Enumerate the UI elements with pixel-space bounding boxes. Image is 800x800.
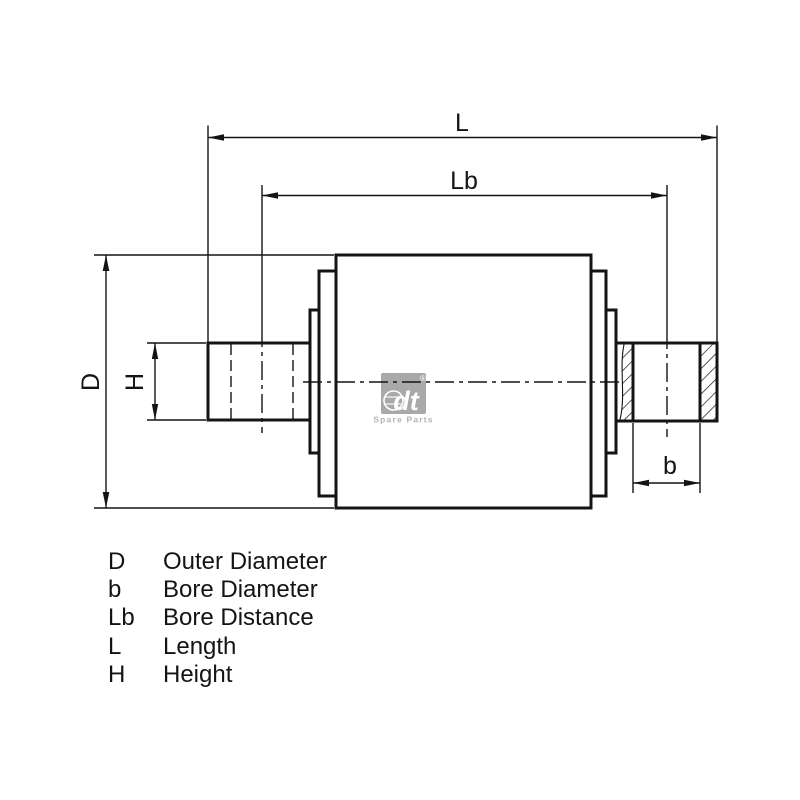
legend-description: Bore Diameter <box>163 576 318 604</box>
legend-symbol: H <box>108 661 163 689</box>
dim-label-b: b <box>663 452 677 480</box>
dimension-H <box>147 343 206 420</box>
legend-row: L Length <box>108 633 327 661</box>
right-ring <box>591 271 606 496</box>
left-shaft <box>208 343 310 420</box>
arrowhead-icon <box>152 343 158 359</box>
dimension-L <box>208 126 717 343</box>
arrowhead-icon <box>701 134 717 141</box>
legend-description: Height <box>163 661 232 689</box>
arrowhead-icon <box>103 492 110 508</box>
legend-description: Bore Distance <box>163 604 314 632</box>
hatch-right-wall <box>700 345 716 420</box>
legend-description: Outer Diameter <box>163 548 327 576</box>
logo-caption-text: Spare Parts <box>373 415 433 425</box>
legend-row: b Bore Diameter <box>108 576 327 604</box>
arrowhead-icon <box>633 480 649 486</box>
legend-symbol: b <box>108 576 163 604</box>
legend-symbol: D <box>108 548 163 576</box>
logo-brand-text: dt <box>393 386 419 416</box>
legend-row: Lb Bore Distance <box>108 604 327 632</box>
arrowhead-icon <box>262 192 278 199</box>
dim-label-Lb: Lb <box>450 167 478 195</box>
dim-label-L: L <box>455 109 469 137</box>
arrowhead-icon <box>152 404 158 420</box>
left-ring <box>319 271 336 496</box>
dimension-legend: D Outer Diameter b Bore Diameter Lb Bore… <box>108 548 327 689</box>
legend-symbol: L <box>108 633 163 661</box>
arrowhead-icon <box>103 255 110 271</box>
dt-spare-parts-logo: dt ® Spare Parts <box>373 373 433 425</box>
arrowhead-icon <box>684 480 700 486</box>
dim-label-D: D <box>77 373 105 391</box>
dim-label-H: H <box>121 373 149 391</box>
technical-drawing-page: dt ® Spare Parts <box>0 0 800 800</box>
legend-row: D Outer Diameter <box>108 548 327 576</box>
legend-description: Length <box>163 633 236 661</box>
legend-row: H Height <box>108 661 327 689</box>
arrowhead-icon <box>651 192 667 199</box>
arrowhead-icon <box>208 134 224 141</box>
legend-symbol: Lb <box>108 604 163 632</box>
